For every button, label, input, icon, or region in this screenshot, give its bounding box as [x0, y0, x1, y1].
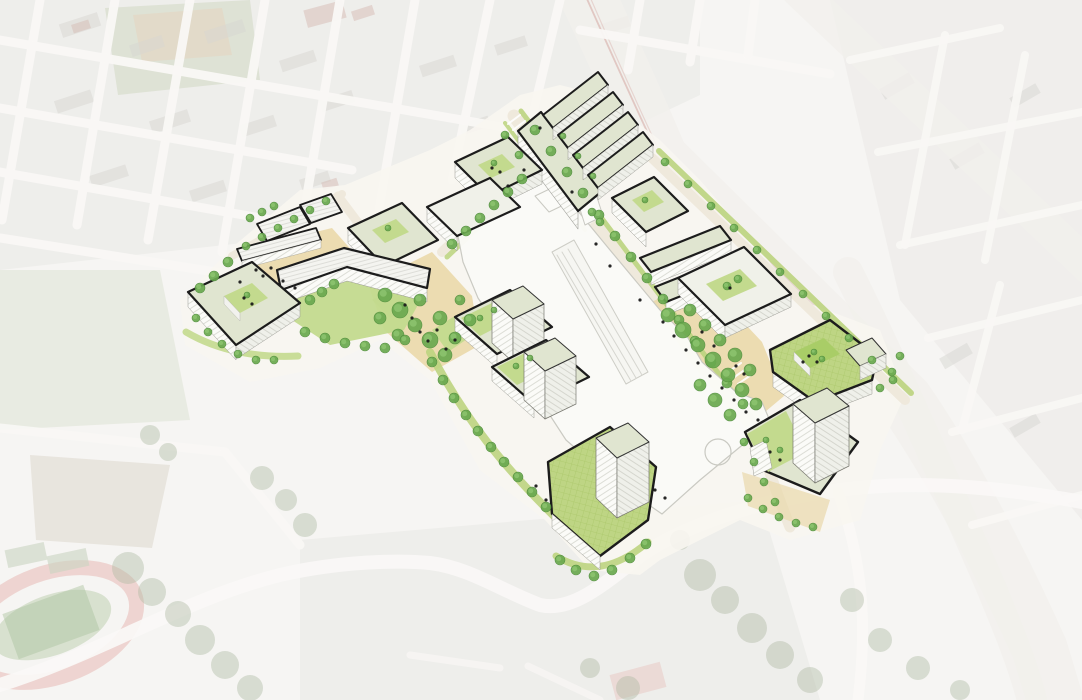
trees-courtyards-12-tree-highlight — [492, 308, 495, 311]
trees-main-street-sw-3-tree-highlight — [597, 219, 601, 223]
trees-main-street-13-tree-highlight — [739, 400, 744, 405]
trees-se-block-7-tree-highlight — [761, 479, 765, 483]
trees-left-cluster-1-tree-highlight — [210, 272, 215, 277]
trees-courtyards-5-tree-highlight — [591, 174, 594, 177]
trees-se-block-1-tree-highlight — [760, 506, 764, 510]
trees-courtyards-6-tree-highlight — [812, 350, 815, 353]
trees-courtyards-7-tree-highlight — [820, 357, 823, 360]
people-streets-5-person-dot — [742, 372, 745, 375]
trees-u-bldg-5-tree-highlight — [271, 357, 275, 361]
people-linear-park-0-person-dot — [410, 316, 413, 319]
trees-left-cluster-9-tree-highlight — [361, 342, 366, 347]
trees-promenade-east-3-tree-highlight — [707, 354, 715, 362]
people-linear-park-1-person-dot — [418, 330, 421, 333]
trees-courtyards-17-tree-highlight — [247, 215, 251, 219]
trees-se-block-10-tree-highlight — [889, 369, 893, 373]
trees-linear-park-1-tree-highlight — [394, 304, 402, 312]
trees-south-5-tree-highlight — [642, 540, 647, 545]
trees-main-street-0-tree-highlight — [531, 126, 536, 131]
trees-promenade-east-8-tree-highlight — [730, 350, 737, 357]
trees-south-4-tree-highlight — [626, 554, 631, 559]
trees-se-block-0-tree-highlight — [745, 495, 749, 499]
trees-u-bldg-2-tree-highlight — [219, 341, 223, 345]
trees-courtyards-0-tree-highlight — [724, 283, 728, 287]
trees-courtyards-11-tree-highlight — [478, 316, 481, 319]
trees-linear-park-6-tree-highlight — [416, 296, 422, 302]
trees-left-top-street-3-tree-highlight — [291, 216, 295, 220]
trees-left-cluster-3-tree-highlight — [306, 296, 311, 301]
trees-promenade-east-0-tree-highlight — [663, 310, 670, 317]
trees-courtyards-4-tree-highlight — [576, 154, 579, 157]
trees-promenade-east-7-tree-highlight — [716, 336, 722, 342]
people-streets-3-person-dot — [638, 298, 641, 301]
trees-sw-road-0-tree-highlight — [428, 358, 433, 363]
trees-promenade-east-11-tree-highlight — [752, 400, 758, 406]
trees-u-bldg-3-tree-highlight — [235, 351, 239, 355]
people-plaza-left-6-person-dot — [242, 296, 245, 299]
trees-u-bldg-0-tree-highlight — [193, 315, 197, 319]
trees-u-bldg-4-tree-highlight — [253, 357, 257, 361]
trees-promenade-east-14-tree-highlight — [726, 411, 732, 417]
trees-left-top-street-1-tree-highlight — [259, 234, 263, 238]
trees-frontage-7-tree-highlight — [823, 313, 827, 317]
trees-left-cluster-2-tree-highlight — [196, 284, 201, 289]
people-courtyards-4-person-dot — [490, 166, 493, 169]
people-streets-8-person-dot — [538, 126, 541, 129]
trees-left-cluster-0-tree-highlight — [224, 258, 229, 263]
trees-courtyards-15-tree-highlight — [764, 438, 767, 441]
trees-left-cluster-4-tree-highlight — [318, 288, 323, 293]
trees-promenade-east-5-tree-highlight — [686, 306, 692, 312]
trees-left-cluster-6-tree-highlight — [301, 328, 306, 333]
people-linear-park-2-person-dot — [426, 339, 429, 342]
trees-left-cluster-7-tree-highlight — [321, 334, 326, 339]
people-plaza-left-4-person-dot — [293, 286, 296, 289]
trees-nw-street-4-tree-highlight — [504, 188, 509, 193]
trees-main-street-5-tree-highlight — [611, 232, 616, 237]
trees-main-street-2-tree-highlight — [563, 168, 568, 173]
people-streets-1-person-dot — [594, 242, 597, 245]
people-plaza-left-5-person-dot — [238, 280, 241, 283]
trees-left-top-street-4-tree-highlight — [307, 207, 311, 211]
people-promenade-3-person-dot — [696, 361, 699, 364]
trees-sw-road-8-tree-highlight — [528, 488, 533, 493]
trees-frontage-10-tree-highlight — [890, 377, 894, 381]
trees-left-cluster-11-tree-highlight — [401, 336, 406, 341]
trees-frontage-6-tree-highlight — [800, 291, 804, 295]
trees-frontage-0-tree-highlight — [662, 159, 666, 163]
trees-sw-road-1-tree-highlight — [439, 376, 444, 381]
trees-sw-road-5-tree-highlight — [487, 443, 492, 448]
trees-se-block-5-tree-highlight — [741, 439, 745, 443]
trees-courtyards-19-tree-highlight — [271, 203, 275, 207]
trees-main-street-1-tree-highlight — [547, 147, 552, 152]
trees-sw-road-4-tree-highlight — [474, 427, 479, 432]
trees-promenade-east-4-tree-highlight — [723, 370, 730, 377]
trees-se-block-4-tree-highlight — [810, 524, 814, 528]
trees-left-cluster-8-tree-highlight — [341, 339, 346, 344]
people-promenade-4-person-dot — [708, 374, 711, 377]
trees-main-street-8-tree-highlight — [659, 295, 664, 300]
trees-left-top-street-5-tree-highlight — [323, 198, 327, 202]
trees-courtyards-1-tree-highlight — [735, 276, 739, 280]
trees-promenade-east-6-tree-highlight — [701, 321, 707, 327]
trees-courtyards-14-tree-highlight — [528, 356, 531, 359]
trees-main-street-sw-1-tree-highlight — [516, 152, 520, 156]
trees-main-street-sw-0-tree-highlight — [502, 132, 506, 136]
trees-nw-street-1-tree-highlight — [462, 227, 467, 232]
trees-se-block-6-tree-highlight — [751, 459, 755, 463]
trees-left-top-street-2-tree-highlight — [275, 225, 279, 229]
masterplan-figure — [0, 0, 1082, 700]
trees-courtyards-3-tree-highlight — [561, 134, 564, 137]
trees-frontage-3-tree-highlight — [731, 225, 735, 229]
trees-sw-road-3-tree-highlight — [462, 411, 467, 416]
people-courtyards-3-person-dot — [728, 286, 731, 289]
people-courtyards-2-person-dot — [801, 360, 804, 363]
people-courtyards-5-person-dot — [498, 170, 501, 173]
people-streets-7-person-dot — [506, 184, 509, 187]
trees-nw-street-5-tree-highlight — [518, 175, 523, 180]
people-promenade-2-person-dot — [684, 348, 687, 351]
trees-promenade-east-1-tree-highlight — [677, 324, 685, 332]
people-courtyards-6-person-dot — [768, 450, 771, 453]
trees-courtyards-8-tree-highlight — [386, 226, 389, 229]
trees-u-bldg-1-tree-highlight — [205, 329, 209, 333]
people-streets-4-person-dot — [734, 364, 737, 367]
trees-courtyards-9-tree-highlight — [492, 161, 495, 164]
trees-main-street-sw-2-tree-highlight — [589, 209, 593, 213]
trees-frontage-8-tree-highlight — [846, 335, 850, 339]
trees-nw-street-3-tree-highlight — [490, 201, 495, 206]
trees-left-top-street-0-tree-highlight — [243, 243, 247, 247]
people-promenade-5-person-dot — [720, 386, 723, 389]
trees-se-block-11-tree-highlight — [897, 353, 901, 357]
trees-promenade-east-2-tree-highlight — [693, 340, 700, 347]
people-linear-park-3-person-dot — [435, 328, 438, 331]
trees-sw-road-7-tree-highlight — [514, 473, 519, 478]
trees-promenade-east-9-tree-highlight — [746, 366, 752, 372]
trees-linear-park-9-tree-highlight — [376, 314, 382, 320]
trees-courtyards-18-tree-highlight — [259, 209, 263, 213]
people-south-1-person-dot — [544, 498, 547, 501]
people-promenade-6-person-dot — [732, 398, 735, 401]
trees-linear-park-5-tree-highlight — [394, 331, 400, 337]
people-south-2-person-dot — [653, 488, 656, 491]
people-plaza-left-0-person-dot — [254, 268, 257, 271]
trees-south-0-tree-highlight — [556, 556, 561, 561]
trees-se-block-2-tree-highlight — [776, 514, 780, 518]
trees-nw-street-0-tree-highlight — [448, 240, 453, 245]
trees-left-cluster-10-tree-highlight — [381, 344, 386, 349]
trees-main-street-7-tree-highlight — [643, 274, 648, 279]
trees-promenade-east-10-tree-highlight — [737, 385, 744, 392]
trees-promenade-east-13-tree-highlight — [710, 395, 717, 402]
trees-frontage-5-tree-highlight — [777, 269, 781, 273]
trees-main-street-3-tree-highlight — [579, 189, 584, 194]
trees-south-1-tree-highlight — [572, 566, 577, 571]
people-promenade-10-person-dot — [756, 418, 759, 421]
people-plaza-left-7-person-dot — [250, 302, 253, 305]
people-streets-6-person-dot — [522, 168, 525, 171]
trees-frontage-2-tree-highlight — [708, 203, 712, 207]
people-streets-0-person-dot — [570, 190, 573, 193]
aerial-masterplan-rendering — [0, 0, 1082, 700]
trees-linear-park-7-tree-highlight — [435, 313, 442, 320]
trees-courtyards-16-tree-highlight — [778, 448, 781, 451]
people-courtyards-0-person-dot — [807, 354, 810, 357]
trees-south-3-tree-highlight — [608, 566, 613, 571]
people-linear-park-4-person-dot — [444, 347, 447, 350]
trees-sw-road-9-tree-highlight — [542, 503, 547, 508]
trees-frontage-1-tree-highlight — [685, 181, 689, 185]
trees-sw-road-6-tree-highlight — [500, 458, 505, 463]
people-courtyards-1-person-dot — [815, 360, 818, 363]
people-plaza-left-2-person-dot — [269, 266, 272, 269]
trees-courtyards-13-tree-highlight — [514, 364, 517, 367]
trees-promenade-east-12-tree-highlight — [696, 381, 702, 387]
trees-sw-road-2-tree-highlight — [450, 394, 455, 399]
trees-linear-park-2-tree-highlight — [410, 320, 417, 327]
trees-linear-park-10-tree-highlight — [456, 296, 461, 301]
trees-se-block-3-tree-highlight — [793, 520, 797, 524]
people-plaza-left-1-person-dot — [261, 274, 264, 277]
people-linear-park-6-person-dot — [453, 338, 456, 341]
trees-nw-street-2-tree-highlight — [476, 214, 481, 219]
trees-se-block-9-tree-highlight — [877, 385, 881, 389]
trees-frontage-9-tree-highlight — [869, 357, 873, 361]
trees-left-cluster-5-tree-highlight — [330, 280, 335, 285]
trees-south-2-tree-highlight — [590, 572, 595, 577]
people-promenade-0-person-dot — [661, 320, 664, 323]
people-south-3-person-dot — [663, 496, 666, 499]
people-promenade-7-person-dot — [744, 410, 747, 413]
people-linear-park-5-person-dot — [403, 303, 406, 306]
trees-linear-park-4-tree-highlight — [440, 350, 447, 357]
trees-frontage-4-tree-highlight — [754, 247, 758, 251]
people-plaza-left-3-person-dot — [281, 279, 284, 282]
trees-main-street-6-tree-highlight — [627, 253, 632, 258]
trees-linear-park-0-tree-highlight — [380, 290, 387, 297]
people-south-0-person-dot — [534, 484, 537, 487]
people-promenade-8-person-dot — [700, 330, 703, 333]
trees-linear-park-11-tree-highlight — [466, 316, 472, 322]
trees-courtyards-10-tree-highlight — [245, 293, 248, 296]
people-promenade-1-person-dot — [672, 334, 675, 337]
trees-main-street-9-tree-highlight — [675, 316, 680, 321]
trees-courtyards-2-tree-highlight — [643, 198, 646, 201]
people-streets-2-person-dot — [608, 264, 611, 267]
trees-se-block-8-tree-highlight — [772, 499, 776, 503]
people-promenade-9-person-dot — [712, 344, 715, 347]
people-courtyards-7-person-dot — [778, 458, 781, 461]
